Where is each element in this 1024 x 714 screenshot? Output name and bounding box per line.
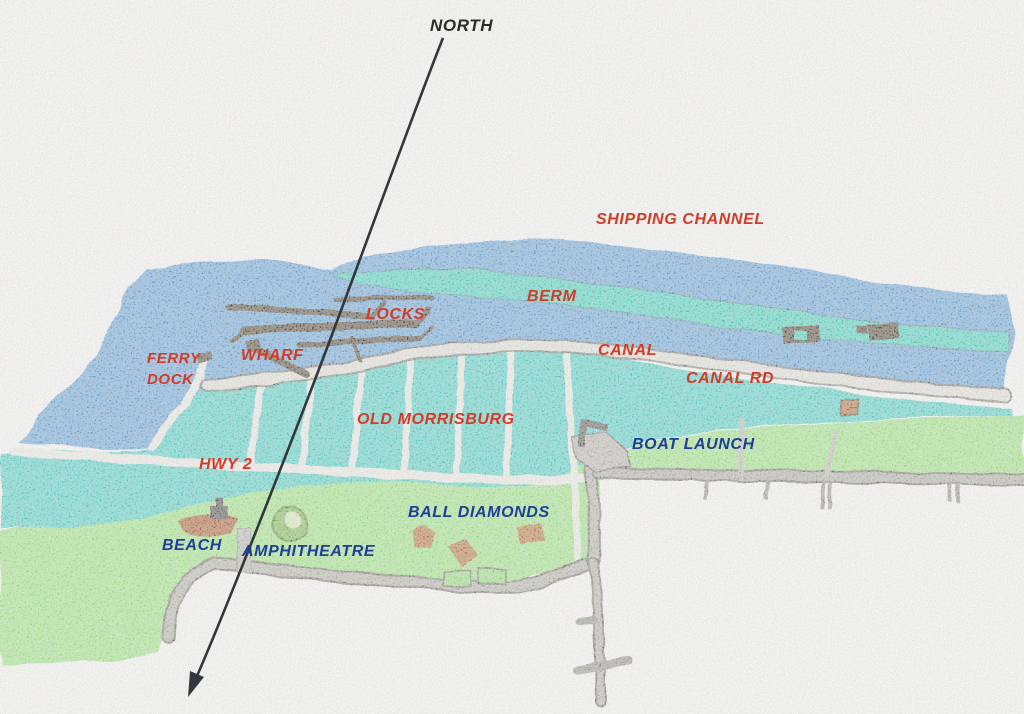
canal-label: CANAL [598,342,657,360]
ferry-dock-label-line1: FERRY [147,350,201,367]
hwy-2-label: HWY 2 [199,456,252,474]
canal-rd-label: CANAL RD [686,370,774,388]
ball-diamonds-label: BALL DIAMONDS [408,504,550,522]
amphitheatre-label: AMPHITHEATRE [242,543,375,561]
berm-label: BERM [527,288,577,306]
locks-label: LOCKS [366,306,425,324]
shipping-channel-label: SHIPPING CHANNEL [596,211,765,229]
boat-launch-label: BOAT LAUNCH [632,436,755,454]
old-morrisburg-label: OLD MORRISBURG [357,411,515,429]
beach-label: BEACH [162,537,222,555]
wharf-label: WHARF [241,347,304,365]
hand-drawn-map-canvas: NORTH SHIPPING CHANNEL BERM LOCKS CANAL … [0,0,1024,714]
north-label: NORTH [430,16,493,36]
ferry-dock-label-line2: DOCK [147,371,194,388]
